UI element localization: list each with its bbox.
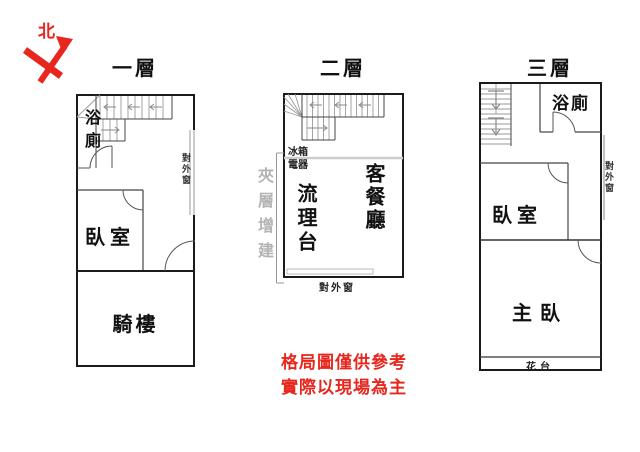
floor2-window <box>287 269 373 274</box>
disclaimer-line1: 格局圖僅供參考 <box>281 350 407 375</box>
floor1-window-label: 對外窗 <box>180 153 193 186</box>
floor3-title: 三層 <box>490 52 610 81</box>
floor1-title: 一層 <box>75 52 195 81</box>
floor1-bathroom-label: 浴廁 <box>78 109 102 155</box>
floor2-window-label: 對外窗 <box>287 279 387 294</box>
floor2-mezzanine-bracket <box>272 150 286 288</box>
floor1-entry-door <box>165 241 195 271</box>
floor3-bathroom-label: 浴廁 <box>540 89 602 114</box>
disclaimer-line2: 實際以現場為主 <box>281 375 407 400</box>
floor3-bedroom-label: 臥室 <box>479 199 555 228</box>
floorplan-diagram: 北 一層 二層 三層 <box>0 0 640 452</box>
north-compass-icon <box>20 34 82 88</box>
floor2-counter-label: 流理台 <box>291 183 320 255</box>
disclaimer-note: 格局圖僅供參考 實際以現場為主 <box>281 350 407 400</box>
floor2-appliance-label: 冰箱 電器 <box>288 146 308 172</box>
floor2-title: 二層 <box>283 52 403 81</box>
floor1-arcade-label: 騎樓 <box>76 308 195 337</box>
floor2-stair-walls <box>302 94 384 140</box>
floor3-planter-label: 花台 <box>479 358 601 373</box>
floor3-master-label: 主臥 <box>479 297 601 326</box>
floor3-master-door <box>578 240 601 263</box>
floor1-bedroom-label: 臥室 <box>76 221 144 250</box>
floor2-living-label: 客餐廳 <box>359 163 388 232</box>
floor3-window-label: 對外窗 <box>603 161 616 194</box>
